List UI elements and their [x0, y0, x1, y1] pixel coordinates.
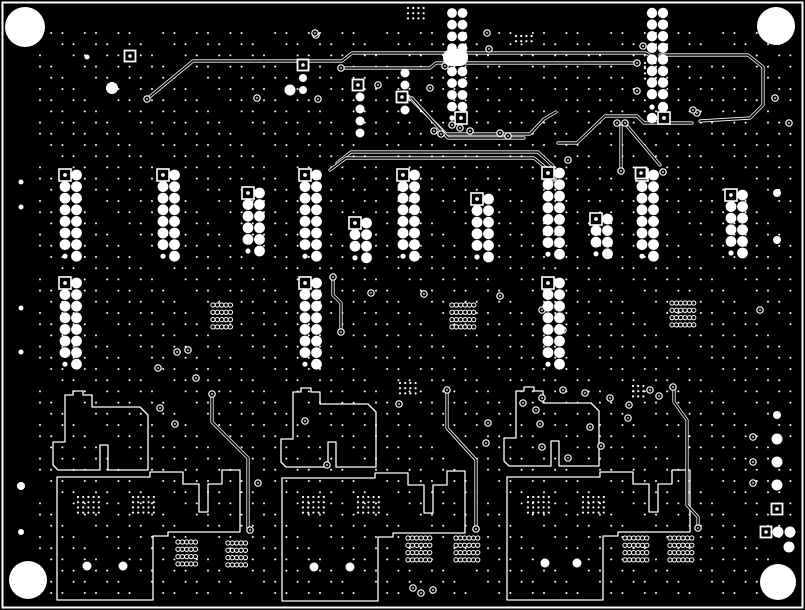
- copper-pour-outlines: [53, 387, 690, 601]
- pcb-layer-screenshot: [0, 0, 805, 610]
- pcb-copper-layer-svg: [0, 0, 805, 610]
